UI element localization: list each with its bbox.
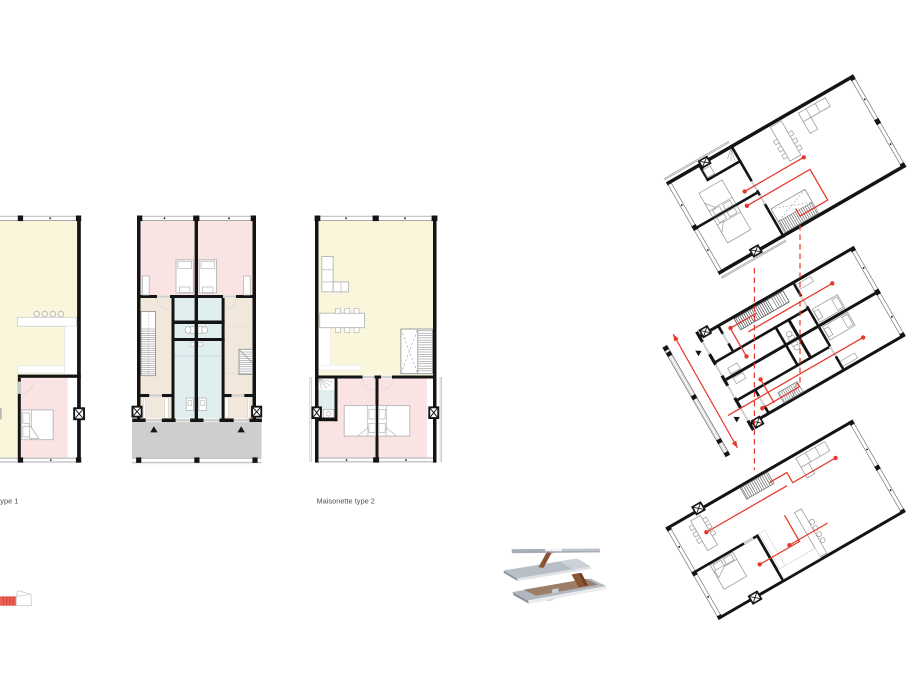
svg-text:Maisonette type 1: Maisonette type 1 (0, 497, 18, 506)
svg-text:Maisonette type 2: Maisonette type 2 (317, 497, 375, 506)
